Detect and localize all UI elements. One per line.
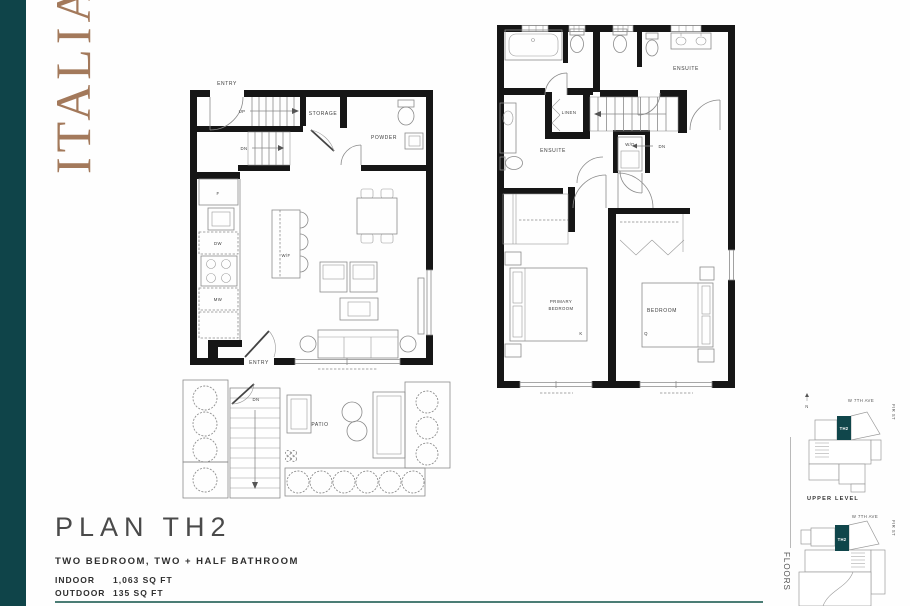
dishwasher-label: DW	[214, 241, 223, 246]
linen-label: LINEN	[562, 110, 577, 115]
powder-room	[341, 100, 423, 165]
upper-walls	[497, 25, 735, 388]
bedroom-closet	[620, 214, 684, 255]
indoor-label: INDOOR	[55, 574, 113, 587]
wine-fridge-label: W/F	[281, 253, 290, 258]
building-outline: TH2	[809, 412, 881, 492]
entry-bottom-label: ENTRY	[249, 360, 269, 366]
plan-subtitle: TWO BEDROOM, TWO + HALF BATHROOM	[55, 556, 475, 567]
plan-specs: INDOOR 1,063 SQ FT OUTDOOR 135 SQ FT	[55, 574, 475, 600]
svg-text:N: N	[805, 404, 809, 409]
upper-level-floorplan: ENSUITE LINEN W/D DN ENSUITE PRIMARY BED…	[485, 15, 745, 400]
building-outline-lower: TH2	[799, 521, 885, 606]
living-room	[300, 262, 424, 358]
dn-upper-label: DN	[658, 144, 665, 149]
bedroom-label: BEDROOM	[647, 308, 677, 314]
kitchen	[199, 179, 240, 340]
avenue-label-lower: W 7TH AVE	[852, 514, 878, 519]
primary-bed	[505, 252, 587, 357]
patio	[183, 380, 450, 498]
outdoor-value: 135 SQ FT	[113, 587, 164, 600]
primary-bedroom-label-line1: PRIMARY	[550, 299, 572, 304]
main-windows	[295, 270, 433, 369]
storage-door	[311, 130, 334, 151]
main-level-labels: ENTRY UP DN STORAGE POWDER F DW MW W/F E…	[214, 81, 397, 428]
street-label: FIR ST	[891, 404, 896, 420]
fridge-label: F	[216, 191, 219, 196]
patio-label: PATIO	[311, 422, 328, 428]
main-level-floorplan: ENTRY UP DN STORAGE POWDER F DW MW W/F E…	[168, 58, 468, 508]
dining-set	[357, 189, 397, 243]
upper-windows	[520, 250, 735, 393]
ensuite-left-label: ENSUITE	[540, 148, 566, 154]
second-bed	[642, 267, 714, 362]
patio-dn-label: DN	[252, 397, 259, 402]
unit-label-lower: TH2	[838, 537, 847, 542]
main-entry-doors	[210, 97, 276, 357]
margin-rule	[790, 437, 791, 548]
unit-label: TH2	[840, 426, 849, 431]
upper-level-labels: ENSUITE LINEN W/D DN ENSUITE PRIMARY BED…	[540, 66, 699, 336]
footer-accent-rule	[55, 601, 763, 603]
dn-label: DN	[240, 146, 247, 151]
king-bed-label: K	[579, 331, 582, 336]
primary-closet	[503, 194, 568, 244]
outdoor-label: OUTDOOR	[55, 587, 113, 600]
queen-bed-label: Q	[644, 331, 648, 336]
north-arrow-icon: N	[805, 393, 809, 409]
indoor-spec-row: INDOOR 1,063 SQ FT	[55, 574, 475, 587]
indoor-value: 1,063 SQ FT	[113, 574, 173, 587]
plan-summary: PLAN TH2 TWO BEDROOM, TWO + HALF BATHROO…	[55, 512, 475, 600]
plan-title: PLAN TH2	[55, 512, 475, 543]
brand-logo-vertical: ITALIA	[47, 0, 99, 174]
entry-top-label: ENTRY	[217, 81, 237, 87]
upper-stairs	[590, 97, 678, 149]
outdoor-spec-row: OUTDOOR 135 SQ FT	[55, 587, 475, 600]
lower-keyplan: W 7TH AVE FIR ST TH2	[793, 508, 910, 606]
upper-keyplan: N W 7TH AVE FIR ST TH2 UPPER LEVEL	[795, 392, 907, 504]
powder-label: POWDER	[371, 135, 397, 141]
street-label-lower: FIR ST	[891, 520, 896, 536]
floorplan-sheet: ITALIA	[0, 0, 910, 606]
ensuite-right-label: ENSUITE	[673, 66, 699, 72]
up-label: UP	[239, 109, 246, 114]
sidebar-accent-bar	[0, 0, 26, 606]
kitchen-island	[272, 210, 308, 278]
upper-level-caption: UPPER LEVEL	[807, 496, 859, 502]
side-margin-label: FLOORS	[782, 552, 791, 606]
microwave-label: MW	[214, 297, 223, 302]
primary-bedroom-label-line2: BEDROOM	[548, 306, 573, 311]
avenue-label: W 7TH AVE	[848, 398, 874, 403]
washer-dryer-label: W/D	[625, 142, 635, 147]
storage-label: STORAGE	[309, 111, 338, 117]
